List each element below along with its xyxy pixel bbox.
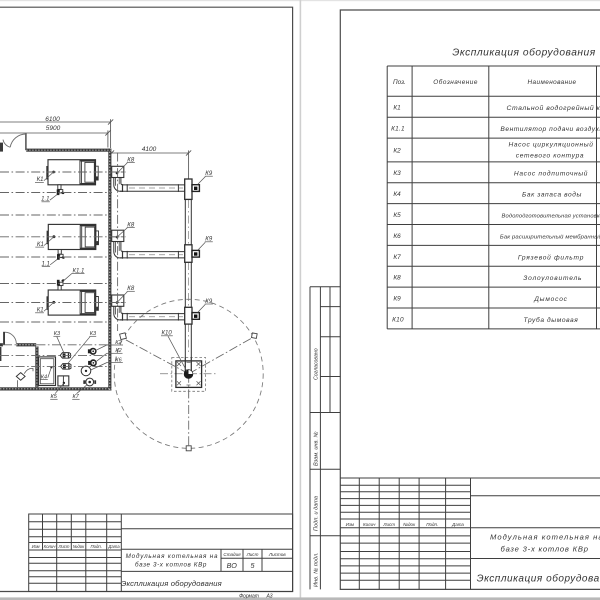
svg-text:Модульная котельная на: Модульная котельная на (126, 552, 219, 560)
svg-text:К1: К1 (393, 105, 401, 112)
svg-text:К2: К2 (393, 148, 401, 155)
svg-text:Бак расширительный мембранный: Бак расширительный мембранный (500, 233, 600, 240)
svg-text:К6: К6 (393, 233, 401, 240)
svg-text:Листов: Листов (268, 552, 286, 557)
svg-text:Дымосос: Дымосос (533, 296, 568, 303)
svg-text:Золоуловитель: Золоуловитель (523, 275, 582, 282)
svg-text:Лист: Лист (57, 544, 69, 549)
svg-text:Поз.: Поз. (393, 79, 406, 86)
svg-text:ВО: ВО (227, 561, 238, 570)
svg-text:К10: К10 (392, 317, 404, 324)
svg-text:К9: К9 (393, 296, 401, 303)
svg-text:Насос подпиточный: Насос подпиточный (514, 169, 588, 177)
svg-text:6100: 6100 (45, 116, 60, 123)
svg-text:Обозначение: Обозначение (433, 78, 478, 86)
svg-text:Лист: Лист (246, 552, 259, 557)
svg-text:Насос циркуляционный: Насос циркуляционный (508, 141, 593, 149)
svg-text:К7: К7 (393, 254, 401, 261)
svg-text:Стадия: Стадия (223, 552, 241, 557)
svg-text:Модульная котельная на: Модульная котельная на (490, 533, 600, 542)
svg-text:Согласовано: Согласовано (314, 348, 320, 380)
svg-text:Экспликация оборудования: Экспликация оборудования (452, 47, 596, 59)
svg-text:Изм: Изм (346, 522, 354, 527)
svg-text:сетевого контура: сетевого контура (516, 153, 584, 160)
svg-text:Наименование: Наименование (528, 79, 577, 86)
svg-text:5900: 5900 (46, 125, 61, 132)
svg-text:Экспликация оборудования: Экспликация оборудования (477, 573, 600, 585)
svg-text:Формат: Формат (239, 594, 259, 600)
svg-text:Вентилятор подачи воздуха: Вентилятор подачи воздуха (500, 125, 600, 133)
svg-text:базе 3-х котлов КВр: базе 3-х котлов КВр (135, 560, 207, 568)
svg-text:Подп.: Подп. (426, 522, 438, 527)
svg-text:№док: №док (403, 522, 416, 527)
svg-text:К8: К8 (393, 275, 401, 282)
svg-text:Стальной водогрейный котёл: Стальной водогрейный котёл (507, 104, 600, 112)
svg-text:базе 3-х котлов КВр: базе 3-х котлов КВр (501, 545, 589, 554)
svg-text:Инв. № подл.: Инв. № подл. (314, 552, 320, 587)
svg-text:К5: К5 (393, 212, 401, 219)
svg-text:К4: К4 (393, 191, 401, 198)
svg-text:Взам. инв. №: Взам. инв. № (314, 431, 320, 466)
svg-text:Бак запаса воды: Бак запаса воды (522, 190, 582, 198)
svg-text:Грязевой фильтр: Грязевой фильтр (518, 253, 584, 261)
svg-text:Изм: Изм (32, 544, 40, 549)
svg-text:Подп.: Подп. (90, 544, 101, 549)
svg-text:Дата: Дата (451, 522, 464, 527)
svg-text:№док: №док (73, 544, 85, 549)
svg-text:Экспликация оборудования: Экспликация оборудования (121, 579, 222, 588)
svg-text:К3: К3 (393, 170, 401, 177)
svg-text:5: 5 (251, 561, 256, 570)
svg-text:Труба дымовая: Труба дымовая (524, 316, 579, 324)
svg-text:К1.1: К1.1 (391, 126, 405, 133)
svg-text:Водоподготовительная установка: Водоподготовительная установка (502, 214, 600, 220)
svg-text:Колич: Колич (363, 522, 376, 527)
svg-text:Колич: Колич (44, 544, 57, 549)
svg-text:4100: 4100 (142, 146, 157, 153)
svg-text:А3: А3 (265, 594, 272, 600)
svg-text:Дата: Дата (107, 544, 120, 549)
svg-text:Подп. и дата: Подп. и дата (314, 496, 320, 531)
svg-text:Лист: Лист (382, 522, 395, 527)
